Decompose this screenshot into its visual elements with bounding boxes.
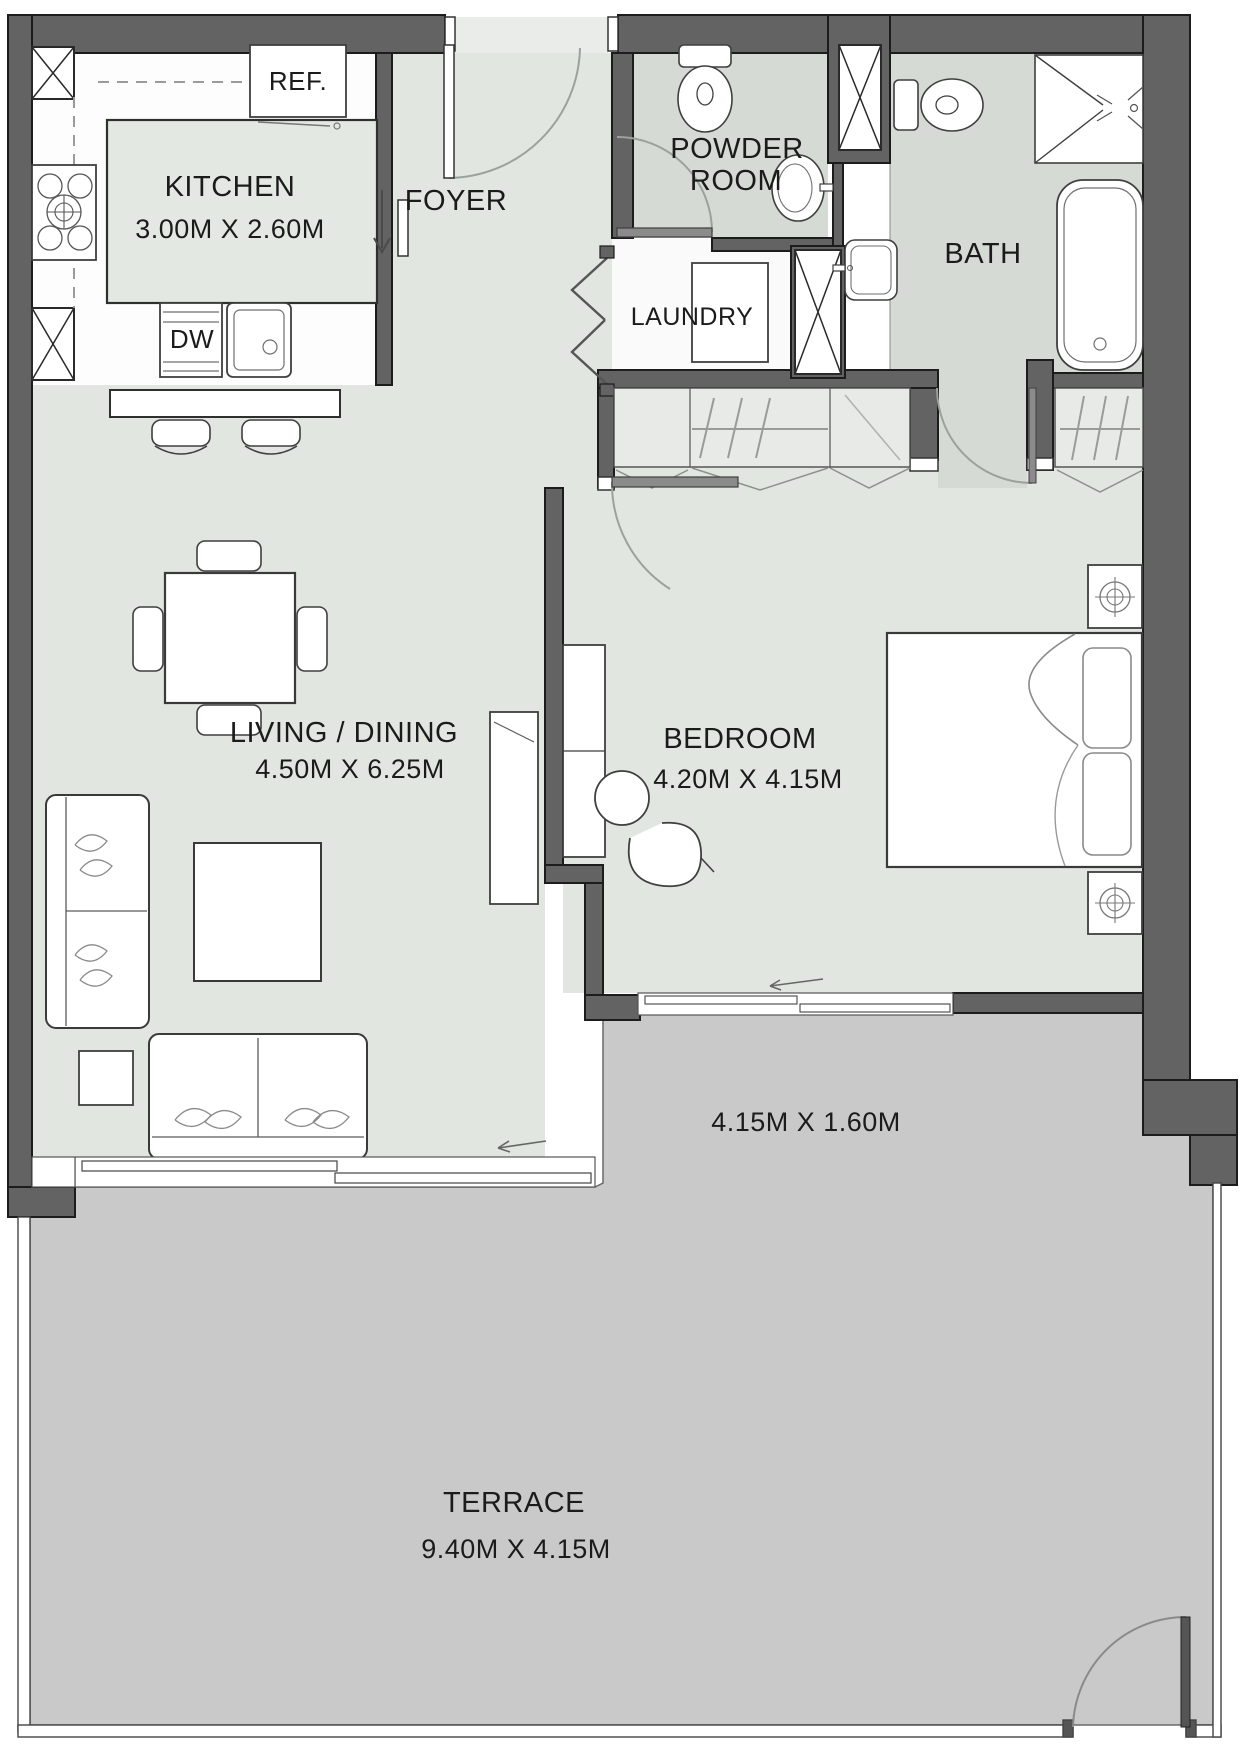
wall-living-bedroom-pier — [585, 883, 603, 995]
tv-unit-icon — [490, 712, 538, 904]
door-leaf — [1029, 388, 1036, 483]
bed-icon — [887, 633, 1142, 867]
bedroom-label: BEDROOM — [663, 723, 816, 755]
nightstand-icon — [1088, 872, 1142, 934]
wall-bedroom-bottom — [953, 993, 1143, 1013]
nightstand-icon — [1088, 565, 1142, 628]
wall-closet-left-jamb — [598, 388, 614, 488]
powder-room-label-line1: POWDER — [670, 133, 804, 165]
refrigerator-label: REF. — [269, 66, 327, 96]
stove-icon — [32, 165, 96, 260]
coffee-table-icon — [194, 843, 321, 981]
living-dining-dims: 4.50M X 6.25M — [255, 754, 445, 784]
terrace-label: TERRACE — [443, 1487, 585, 1519]
living-dining-label: LIVING / DINING — [230, 717, 458, 749]
floor-plan: KITCHEN 3.00M X 2.60M REF. DW FOYER POWD… — [0, 0, 1251, 1747]
wall-closet-top — [598, 370, 938, 388]
wall-closet-right-step — [910, 388, 938, 460]
wall-balcony-left-block — [585, 995, 640, 1020]
dishwasher-label: DW — [170, 324, 214, 354]
breakfast-bar — [110, 390, 340, 417]
door-leaf — [617, 228, 712, 237]
wall-kitchen-foyer — [376, 53, 392, 385]
entry-threshold — [455, 17, 608, 53]
balcony-dims: 4.15M X 1.60M — [711, 1107, 901, 1137]
kitchen-sink-icon — [227, 303, 291, 377]
terrace-dims: 9.40M X 4.15M — [421, 1534, 611, 1564]
shaft-xbox-icon — [839, 45, 881, 150]
kitchen-dims: 3.00M X 2.60M — [135, 214, 325, 244]
wall-living-bedroom — [545, 488, 563, 865]
powder-room-label-line2: ROOM — [690, 165, 782, 197]
shower-icon — [1035, 55, 1143, 163]
closet-jamb-cap-right — [910, 458, 938, 471]
shaft-xbox-icon — [32, 47, 74, 99]
dresser-icon — [563, 645, 605, 857]
dining-chair — [297, 607, 327, 671]
toilet-icon — [894, 79, 983, 131]
door-leaf — [444, 45, 454, 178]
laundry-label: LAUNDRY — [631, 303, 754, 331]
pillow — [1083, 753, 1131, 855]
door-leaf — [1181, 1617, 1190, 1727]
toilet-icon — [678, 45, 732, 132]
wall-right-step-b — [1190, 1135, 1237, 1185]
parapet-right — [1213, 1183, 1221, 1737]
entry-jamb-right — [608, 17, 618, 51]
bath-corridor-floor — [938, 370, 1027, 488]
sofa-icon — [149, 1034, 367, 1159]
wall-foyer-powder — [612, 53, 633, 238]
sofa-icon — [46, 795, 149, 1028]
wall-under-tub — [1053, 373, 1143, 388]
wall-living-bedroom-jog — [545, 865, 603, 883]
pillow — [1083, 648, 1131, 748]
wall-right — [1143, 15, 1190, 1080]
shaft-xbox-icon — [32, 308, 74, 380]
wall-left — [8, 15, 32, 1187]
bathtub-icon — [1057, 180, 1143, 370]
parapet-bottom-left — [18, 1725, 1073, 1737]
bedroom-dims: 4.20M X 4.15M — [653, 764, 843, 794]
floor-plan-drawing: KITCHEN 3.00M X 2.60M REF. DW FOYER POWD… — [0, 0, 1251, 1747]
kitchen-label: KITCHEN — [165, 171, 296, 203]
kitchen-island — [107, 120, 377, 303]
foyer-label: FOYER — [405, 185, 507, 217]
door-leaf — [612, 477, 738, 487]
wall-left-foot — [8, 1187, 75, 1217]
dining-chair — [133, 607, 163, 671]
bath-label: BATH — [944, 238, 1021, 270]
parapet-left — [18, 1217, 30, 1733]
wall-right-step-a — [1143, 1080, 1237, 1135]
side-table-icon — [79, 1051, 133, 1105]
dining-chair — [197, 541, 261, 571]
terrace-door-jamb — [1063, 1720, 1073, 1737]
